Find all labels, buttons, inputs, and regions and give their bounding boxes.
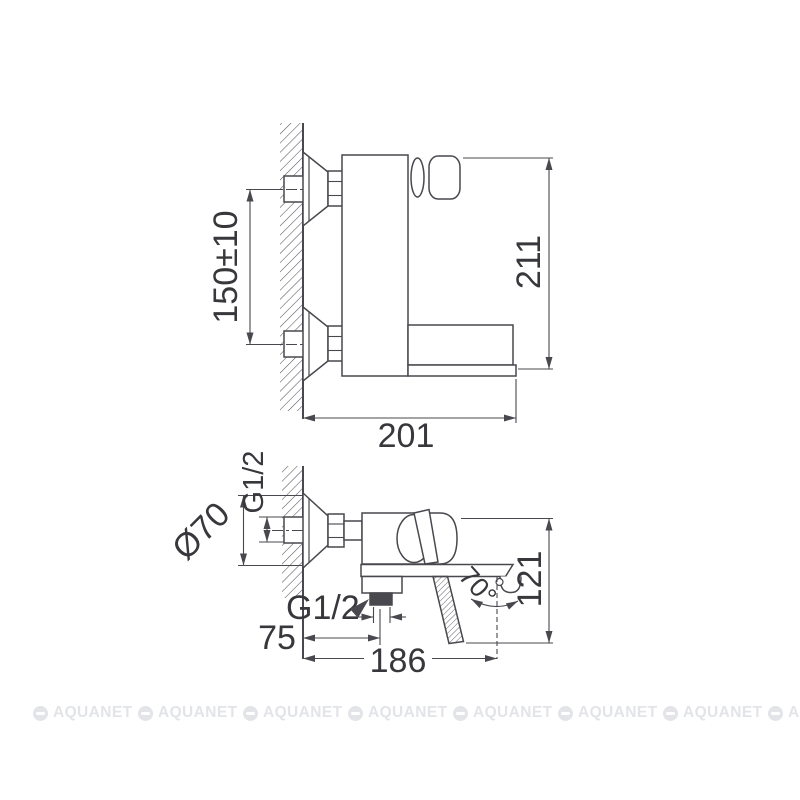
dim-label-spout-length: 201 bbox=[378, 417, 435, 455]
watermark-label: AQUANET bbox=[368, 704, 447, 722]
watermark-label: AQUANET bbox=[683, 704, 762, 722]
handle-knob bbox=[429, 156, 460, 199]
dim-label-inlet-spacing: 150±10 bbox=[207, 210, 245, 323]
watermark-item: AQUANET bbox=[768, 701, 800, 725]
watermark-label: AQUANET bbox=[578, 704, 657, 722]
outlet-thread-black bbox=[370, 593, 392, 605]
dim-label-height-overall: 211 bbox=[510, 235, 548, 289]
dimension-spout-length: 201 bbox=[303, 379, 516, 455]
watermark-item: AQUANET bbox=[453, 701, 558, 725]
watermark-label: AQUANET bbox=[263, 704, 342, 722]
dim-label-spout-reach: 186 bbox=[370, 642, 427, 680]
watermark-label: AQUANET bbox=[473, 704, 552, 722]
dimension-spout-reach: 186 bbox=[303, 642, 497, 680]
watermark-row: AQUANET AQUANET AQUANET AQUANET AQUANET … bbox=[33, 701, 800, 725]
dim-label-inlet-thread: G1/2 bbox=[238, 451, 270, 514]
faucet-body-side bbox=[342, 155, 408, 376]
faucet-dimension-drawing: 150±10 211 201 bbox=[0, 0, 800, 800]
aquanet-logo-icon bbox=[33, 706, 48, 721]
wall-hatch-side bbox=[280, 123, 303, 411]
watermark-item: AQUANET bbox=[558, 701, 663, 725]
watermark-item: AQUANET bbox=[33, 701, 138, 725]
aquanet-logo-icon bbox=[138, 706, 153, 721]
aquanet-logo-icon bbox=[768, 706, 783, 721]
dimension-inlet-thread: G1/2 bbox=[238, 451, 284, 542]
dim-label-flange-diameter: Ø70 bbox=[165, 495, 237, 567]
watermark-item: AQUANET bbox=[138, 701, 243, 725]
spout-side bbox=[408, 325, 516, 376]
watermark-label: AQUANET bbox=[53, 704, 132, 722]
wall-connector-top bbox=[303, 152, 344, 226]
wall-connector-bottom bbox=[303, 307, 344, 381]
dim-label-outlet-thread: G1/2 bbox=[286, 589, 360, 627]
watermark-label: AQUANET bbox=[788, 704, 800, 722]
plan-view: 70° Ø70 G1/2 121 G1/2 bbox=[165, 451, 553, 680]
dimension-flange-diameter: Ø70 bbox=[165, 495, 302, 567]
handle-lever-end bbox=[411, 158, 424, 197]
wall-connector-plan bbox=[303, 493, 362, 568]
watermark-item: AQUANET bbox=[243, 701, 348, 725]
watermark-label: AQUANET bbox=[158, 704, 237, 722]
aquanet-logo-icon bbox=[348, 706, 363, 721]
watermark-item: AQUANET bbox=[663, 701, 768, 725]
handle-side bbox=[411, 156, 460, 199]
aquanet-logo-icon bbox=[243, 706, 258, 721]
side-view: 150±10 211 201 bbox=[207, 123, 553, 455]
aquanet-logo-icon bbox=[663, 706, 678, 721]
angle-annotation: 70° bbox=[453, 561, 518, 659]
dim-label-depth-overall: 121 bbox=[511, 551, 549, 608]
dim-label-outlet-offset: 75 bbox=[258, 619, 296, 657]
dimension-inlet-spacing: 150±10 bbox=[207, 190, 282, 345]
aquanet-logo-icon bbox=[558, 706, 573, 721]
aquanet-logo-icon bbox=[453, 706, 468, 721]
technical-drawing-svg: 150±10 211 201 bbox=[0, 0, 800, 695]
watermark-item: AQUANET bbox=[348, 701, 453, 725]
